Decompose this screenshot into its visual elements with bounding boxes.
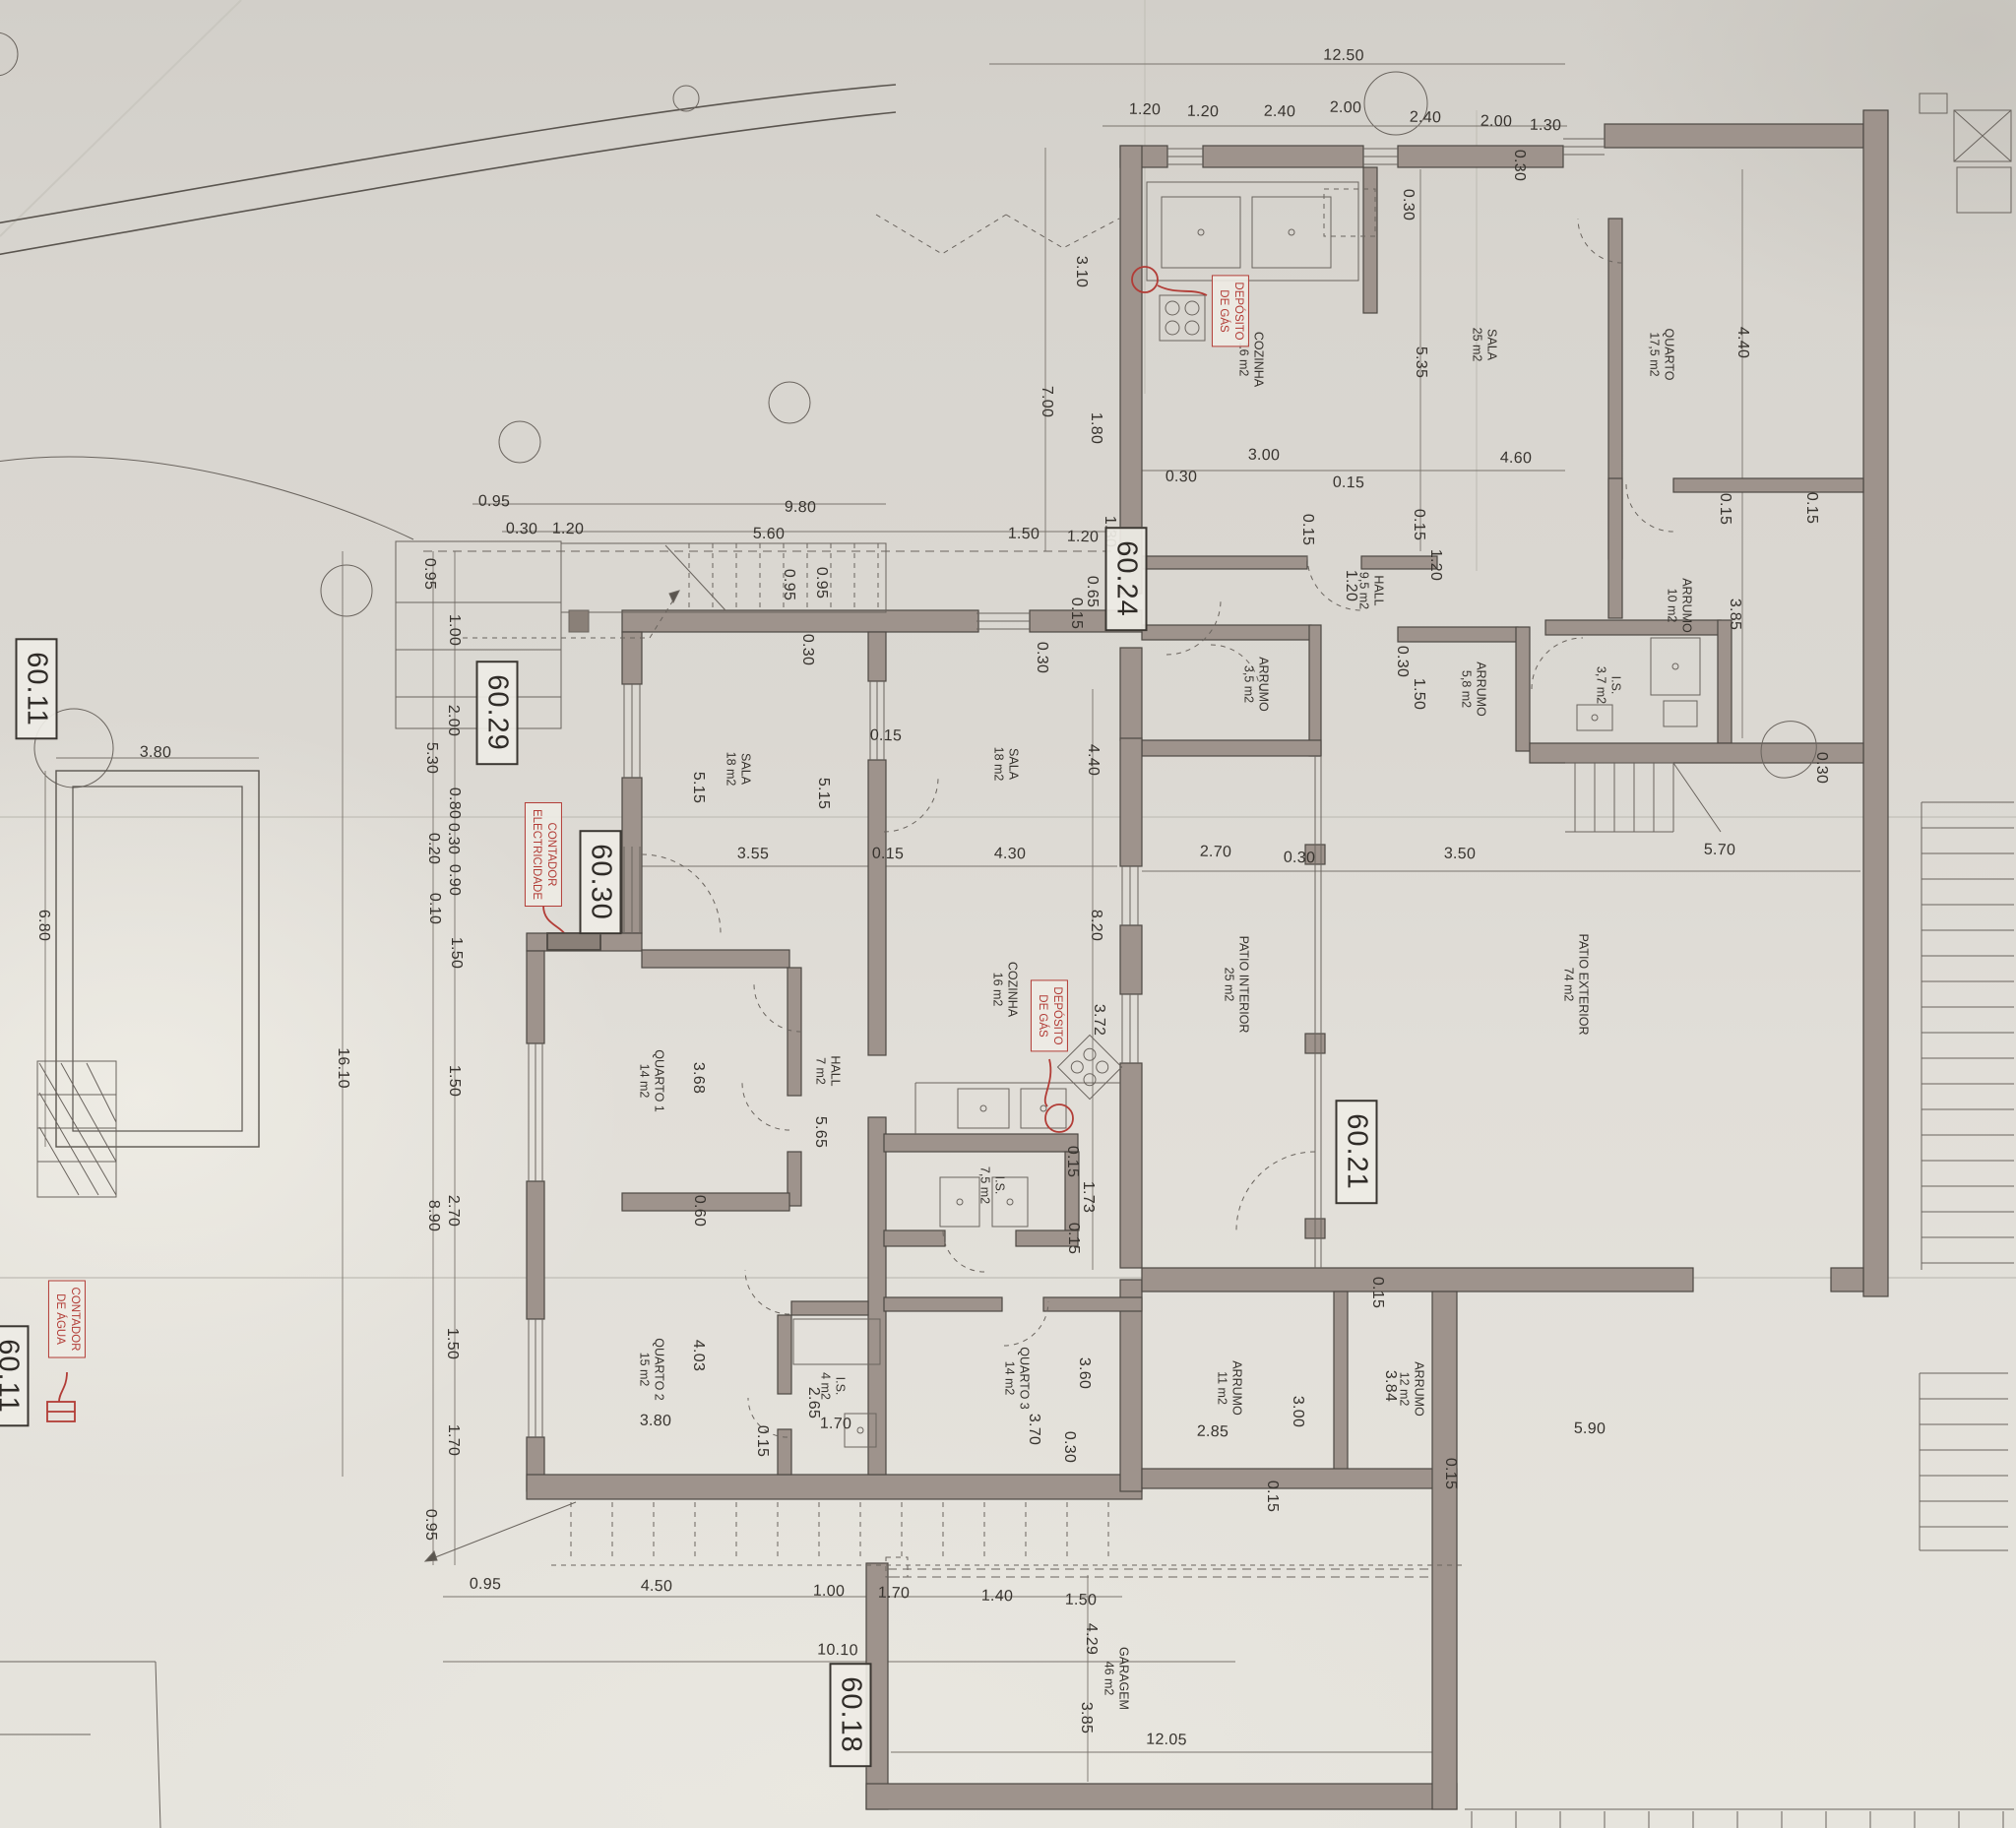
room-label-sala: SALA18 m2 xyxy=(990,747,1021,782)
room-label-arrumo: ARRUMO12 m2 xyxy=(1396,1361,1426,1417)
dimension-label: 3.50 xyxy=(1444,846,1477,864)
dimension-label: 1.00 xyxy=(813,1583,846,1602)
dimension-label: 0.10 xyxy=(425,893,443,924)
dimension-label: 12.05 xyxy=(1146,1731,1187,1749)
dimension-label: 1.80 xyxy=(1087,412,1104,444)
dimension-label: 3.85 xyxy=(1726,599,1743,630)
room-label-hall: HALL7 m2 xyxy=(812,1055,843,1086)
room-label-arrumo: ARRUMO5,8 m2 xyxy=(1458,662,1488,717)
dimension-label: 4.40 xyxy=(1733,327,1751,358)
dimension-label: 5.65 xyxy=(811,1116,829,1148)
dimension-label: 3.80 xyxy=(140,744,172,763)
dimension-label: 0.65 xyxy=(1083,576,1101,607)
room-label-cozinha: COZINHA16 m2 xyxy=(989,962,1020,1017)
dimension-label: 0.15 xyxy=(1716,493,1733,525)
dimension-label: 0.30 xyxy=(1510,150,1528,181)
dimension-label: 0.95 xyxy=(470,1576,502,1595)
room-label-i-s-: I.S.4 m2 xyxy=(817,1372,848,1400)
dimension-label: 3.72 xyxy=(1090,1004,1107,1036)
room-label-arrumo: ARRUMO10 m2 xyxy=(1664,578,1694,633)
dimension-label: 5.35 xyxy=(1412,347,1429,378)
dimension-label: 0.15 xyxy=(1263,1481,1281,1512)
room-label-quarto-2: QUARTO 215 m2 xyxy=(636,1338,666,1400)
room-label-patio-interior: PATIO INTERIOR25 m2 xyxy=(1221,936,1251,1034)
dimension-label: 0.30 xyxy=(1393,646,1411,677)
dimension-label: 0.30 xyxy=(506,521,538,539)
dimension-label: 1.20 xyxy=(1129,101,1162,120)
room-label-hall: HALL9,5 m2 xyxy=(1355,572,1386,609)
dimension-label: 0.15 xyxy=(872,846,905,864)
dimension-label: 2.00 xyxy=(1330,99,1362,118)
dimension-label: 4.29 xyxy=(1082,1623,1100,1655)
dimension-label: 3.85 xyxy=(1077,1702,1095,1733)
dimension-label: 1.20 xyxy=(552,521,585,539)
dimension-label: 1.20 xyxy=(1426,549,1444,581)
dimension-label: 0.95 xyxy=(780,569,797,600)
dimension-label: 5.60 xyxy=(753,526,786,544)
dimension-label: 3.00 xyxy=(1289,1396,1306,1427)
dimension-label: 2.40 xyxy=(1264,103,1296,122)
dimension-label: 0.30 xyxy=(444,823,462,854)
dimension-label: 12.50 xyxy=(1323,46,1364,65)
dimension-label: 4.50 xyxy=(641,1578,673,1597)
dimension-label: 2.00 xyxy=(444,705,462,736)
dimension-label: 0.20 xyxy=(424,833,442,864)
dimension-label: 2.70 xyxy=(1200,844,1232,862)
room-label-i-s-: I.S.3,7 m2 xyxy=(1593,666,1623,704)
room-label-quarto-1: QUARTO 114 m2 xyxy=(636,1049,666,1111)
dimension-label: 1.00 xyxy=(445,614,463,646)
dimension-label: 0.15 xyxy=(870,727,903,746)
floor-plan-sheet: 12.501.201.202.402.002.402.001.300.303.1… xyxy=(0,0,2016,1828)
dimension-label: 0.15 xyxy=(1067,598,1085,629)
dimension-label: 2.00 xyxy=(1480,113,1513,132)
level-marker-60-24: 60.24 xyxy=(1105,527,1148,631)
dimension-label: 0.30 xyxy=(1812,752,1830,784)
dimension-label: 0.30 xyxy=(1165,469,1198,487)
room-label-quarto-3: QUARTO 314 m2 xyxy=(1001,1347,1032,1409)
dimension-label: 1.50 xyxy=(1065,1592,1098,1610)
dimension-label: 3.00 xyxy=(1248,447,1281,466)
dimension-label: 1.73 xyxy=(1079,1181,1097,1213)
level-marker-60-29: 60.29 xyxy=(476,661,519,765)
dimension-label: 1.30 xyxy=(1530,117,1562,136)
dimension-label: 16.10 xyxy=(334,1047,351,1089)
red-annotation-contador: CONTADORELECTRICIDADE xyxy=(525,802,562,907)
dimension-label: 5.70 xyxy=(1704,842,1736,860)
room-label-garagem: GARAGEM46 m2 xyxy=(1101,1647,1131,1710)
dimension-label: 1.50 xyxy=(1008,526,1040,544)
plan-labels: 12.501.201.202.402.002.402.001.300.303.1… xyxy=(0,0,2016,1828)
dimension-label: 3.55 xyxy=(737,846,770,864)
dimension-label: 1.70 xyxy=(444,1424,462,1456)
dimension-label: 1.40 xyxy=(981,1588,1014,1607)
dimension-label: 3.70 xyxy=(1025,1414,1042,1445)
dimension-label: 0.15 xyxy=(1063,1146,1081,1177)
dimension-label: 4.03 xyxy=(689,1340,707,1371)
level-marker-60-18: 60.18 xyxy=(830,1663,872,1767)
dimension-label: 3.68 xyxy=(689,1062,707,1094)
dimension-label: 0.95 xyxy=(478,493,511,512)
level-marker-60-11: 60.11 xyxy=(0,1325,30,1426)
dimension-label: 1.20 xyxy=(1067,529,1100,547)
dimension-label: 7.00 xyxy=(1038,386,1055,417)
dimension-label: 2.85 xyxy=(1197,1423,1229,1442)
dimension-label: 10.10 xyxy=(817,1641,858,1660)
dimension-label: 2.70 xyxy=(444,1195,462,1227)
dimension-label: 4.60 xyxy=(1500,450,1533,469)
room-label-arrumo: ARRUMO11 m2 xyxy=(1214,1360,1244,1416)
dimension-label: 0.30 xyxy=(1284,850,1316,868)
dimension-label: 3.60 xyxy=(1075,1357,1093,1389)
room-label-i-s-: I.S.7,5 m2 xyxy=(976,1166,1007,1204)
dimension-label: 0.15 xyxy=(1802,492,1820,524)
dimension-label: 8.20 xyxy=(1087,910,1104,941)
dimension-label: 4.40 xyxy=(1084,744,1102,776)
dimension-label: 5.30 xyxy=(422,742,440,774)
dimension-label: 6.80 xyxy=(34,910,52,941)
dimension-label: 0.15 xyxy=(1368,1277,1386,1308)
dimension-label: 0.15 xyxy=(1441,1458,1459,1489)
dimension-label: 0.90 xyxy=(445,864,463,896)
dimension-label: 0.95 xyxy=(420,558,438,590)
dimension-label: 0.95 xyxy=(812,567,830,599)
dimension-label: 0.30 xyxy=(1399,189,1417,221)
level-marker-60-30: 60.30 xyxy=(580,830,622,934)
dimension-label: 0.15 xyxy=(753,1425,771,1457)
level-marker-60-21: 60.21 xyxy=(1336,1100,1378,1204)
room-label-quarto: QUARTO17,5 m2 xyxy=(1646,328,1676,380)
room-label-sala: SALA18 m2 xyxy=(723,752,753,787)
dimension-label: 1.20 xyxy=(1187,103,1220,122)
dimension-label: 5.15 xyxy=(689,772,707,803)
dimension-label: 1.70 xyxy=(878,1585,911,1604)
dimension-label: 4.30 xyxy=(994,846,1027,864)
dimension-label: 0.15 xyxy=(1064,1223,1082,1254)
dimension-label: 1.50 xyxy=(447,937,465,969)
dimension-label: 0.60 xyxy=(690,1195,708,1227)
dimension-label: 1.70 xyxy=(820,1416,852,1434)
dimension-label: 5.15 xyxy=(814,778,832,809)
dimension-label: 3.80 xyxy=(640,1413,672,1431)
dimension-label: 9.80 xyxy=(785,499,817,518)
red-annotation-dep-sito: DEPÓSITODE GÁS xyxy=(1212,275,1249,347)
dimension-label: 0.30 xyxy=(1060,1431,1078,1463)
level-marker-60-11: 60.11 xyxy=(16,638,58,739)
dimension-label: 0.30 xyxy=(1033,642,1050,673)
dimension-label: 0.80 xyxy=(445,788,463,819)
room-label-arrumo: ARRUMO3,5 m2 xyxy=(1240,657,1271,712)
dimension-label: 0.15 xyxy=(1298,514,1316,545)
dimension-label: 1.50 xyxy=(445,1065,463,1097)
red-annotation-dep-sito: DEPÓSITODE GÁS xyxy=(1031,979,1068,1051)
dimension-label: 0.15 xyxy=(1410,509,1427,540)
dimension-label: 0.95 xyxy=(421,1509,439,1541)
dimension-label: 0.30 xyxy=(798,634,816,665)
room-label-sala: SALA25 m2 xyxy=(1469,328,1499,362)
room-label-patio-exterior: PATIO EXTERIOR74 m2 xyxy=(1560,933,1591,1035)
dimension-label: 5.90 xyxy=(1574,1420,1606,1439)
dimension-label: 8.90 xyxy=(424,1200,442,1231)
red-annotation-contador: CONTADORDE ÁGUA xyxy=(48,1281,86,1358)
dimension-label: 1.50 xyxy=(443,1328,461,1359)
dimension-label: 3.10 xyxy=(1072,256,1090,287)
dimension-label: 0.15 xyxy=(1333,474,1365,493)
dimension-label: 1.50 xyxy=(1410,678,1427,710)
dimension-label: 2.40 xyxy=(1410,109,1442,128)
